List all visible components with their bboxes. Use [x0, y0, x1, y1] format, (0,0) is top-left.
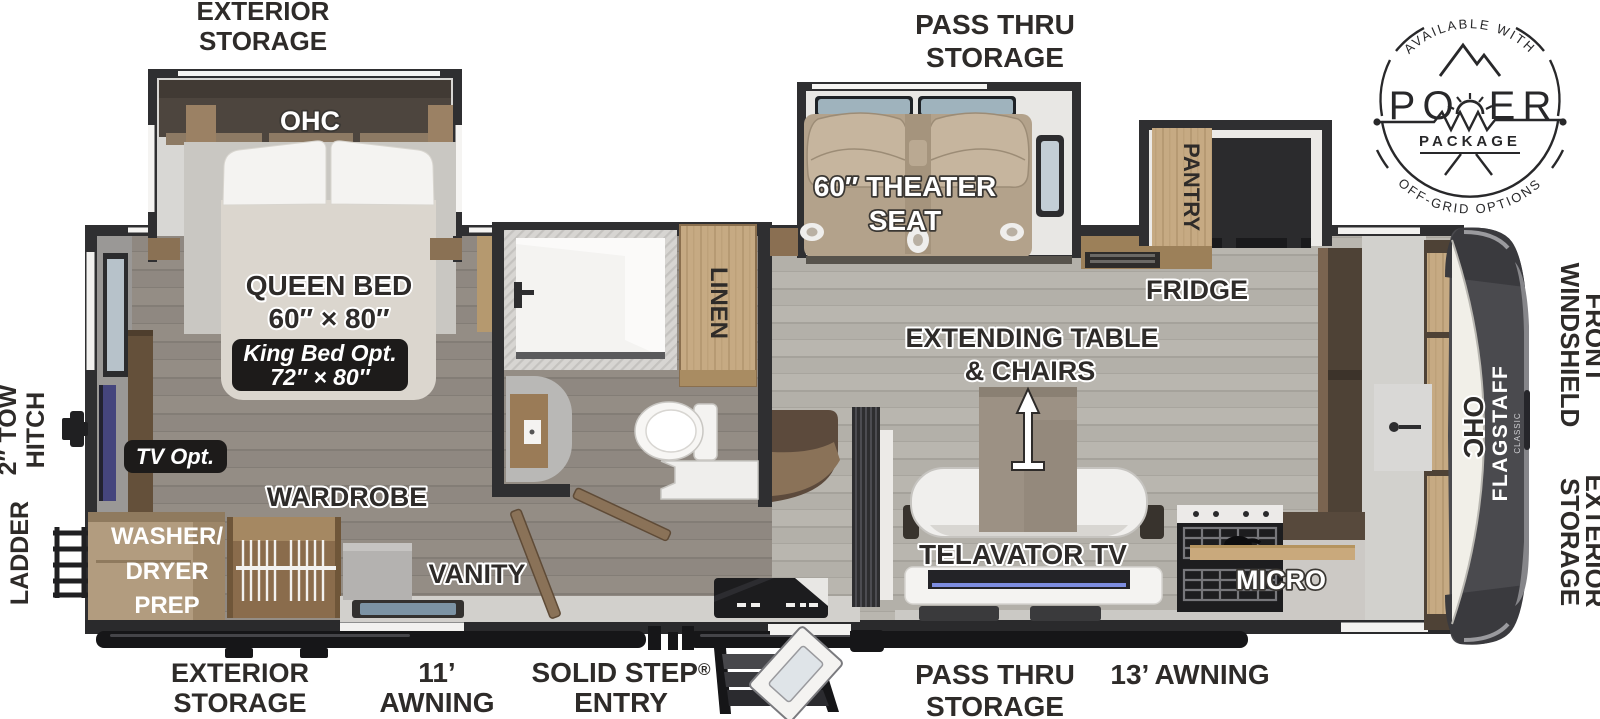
svg-text:STORAGE: STORAGE [926, 42, 1064, 73]
svg-text:E: E [1489, 84, 1516, 128]
svg-text:WASHER/: WASHER/ [111, 523, 223, 550]
svg-text:CLASSIC: CLASSIC [1513, 412, 1522, 453]
svg-text:OHC: OHC [280, 106, 340, 136]
svg-text:SEAT: SEAT [869, 205, 942, 236]
svg-text:11’: 11’ [418, 657, 455, 688]
svg-text:60″ THEATER: 60″ THEATER [814, 171, 996, 202]
svg-text:WARDROBE: WARDROBE [267, 482, 428, 512]
svg-text:EXTENDING TABLE: EXTENDING TABLE [905, 323, 1158, 353]
svg-text:WINDSHIELD: WINDSHIELD [1555, 263, 1585, 428]
svg-text:LINEN: LINEN [705, 267, 732, 339]
svg-text:P: P [1389, 84, 1416, 128]
svg-text:STORAGE: STORAGE [173, 688, 306, 718]
svg-text:STORAGE: STORAGE [926, 691, 1064, 719]
svg-text:EXTERIOR: EXTERIOR [197, 0, 330, 26]
svg-text:STORAGE: STORAGE [1555, 478, 1585, 606]
svg-text:13’ AWNING: 13’ AWNING [1110, 659, 1269, 690]
svg-text:O: O [1422, 84, 1453, 128]
svg-text:PREP: PREP [134, 592, 199, 619]
svg-text:King Bed Opt.: King Bed Opt. [243, 340, 396, 366]
svg-text:PASS THRU: PASS THRU [915, 659, 1075, 690]
svg-text:FLAGSTAFF: FLAGSTAFF [1489, 365, 1512, 502]
svg-text:TV Opt.: TV Opt. [136, 444, 214, 469]
svg-text:LADDER: LADDER [6, 501, 34, 605]
svg-text:R: R [1523, 84, 1552, 128]
svg-text:ENTRY: ENTRY [574, 687, 668, 718]
svg-text:2″ TOW: 2″ TOW [0, 384, 22, 475]
svg-text:HITCH: HITCH [22, 392, 50, 468]
svg-text:PASS THRU: PASS THRU [915, 9, 1075, 40]
svg-text:MICRO: MICRO [1236, 565, 1326, 595]
svg-text:OHC: OHC [1458, 396, 1489, 458]
svg-text:60″ × 80″: 60″ × 80″ [268, 303, 389, 334]
svg-text:VANITY: VANITY [428, 559, 525, 589]
svg-text:EXTERIOR: EXTERIOR [171, 658, 309, 688]
svg-text:72″ × 80″: 72″ × 80″ [270, 364, 370, 390]
svg-text:AWNING: AWNING [379, 687, 494, 718]
svg-text:DRYER: DRYER [125, 558, 208, 585]
svg-text:TELAVATOR TV: TELAVATOR TV [919, 539, 1127, 570]
svg-text:PANTRY: PANTRY [1179, 143, 1204, 231]
svg-text:& CHAIRS: & CHAIRS [965, 356, 1096, 386]
svg-text:QUEEN BED: QUEEN BED [246, 270, 412, 301]
svg-text:PACKAGE: PACKAGE [1419, 133, 1521, 150]
svg-text:FRIDGE: FRIDGE [1146, 275, 1248, 305]
svg-text:SOLID STEP®: SOLID STEP® [532, 657, 711, 688]
svg-text:STORAGE: STORAGE [199, 26, 327, 56]
